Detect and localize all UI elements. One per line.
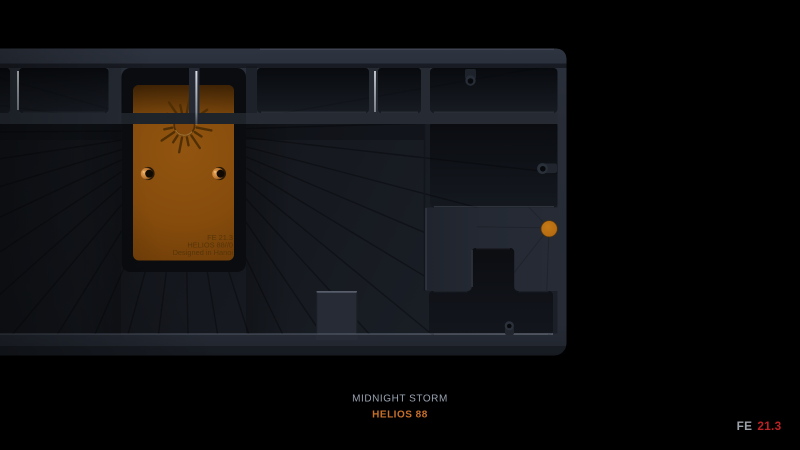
- svg-text:MIDNIGHT STORM: MIDNIGHT STORM: [352, 394, 448, 405]
- svg-text:FE21.3: FE21.3: [737, 419, 782, 433]
- svg-text:HELIOS 88: HELIOS 88: [372, 410, 428, 421]
